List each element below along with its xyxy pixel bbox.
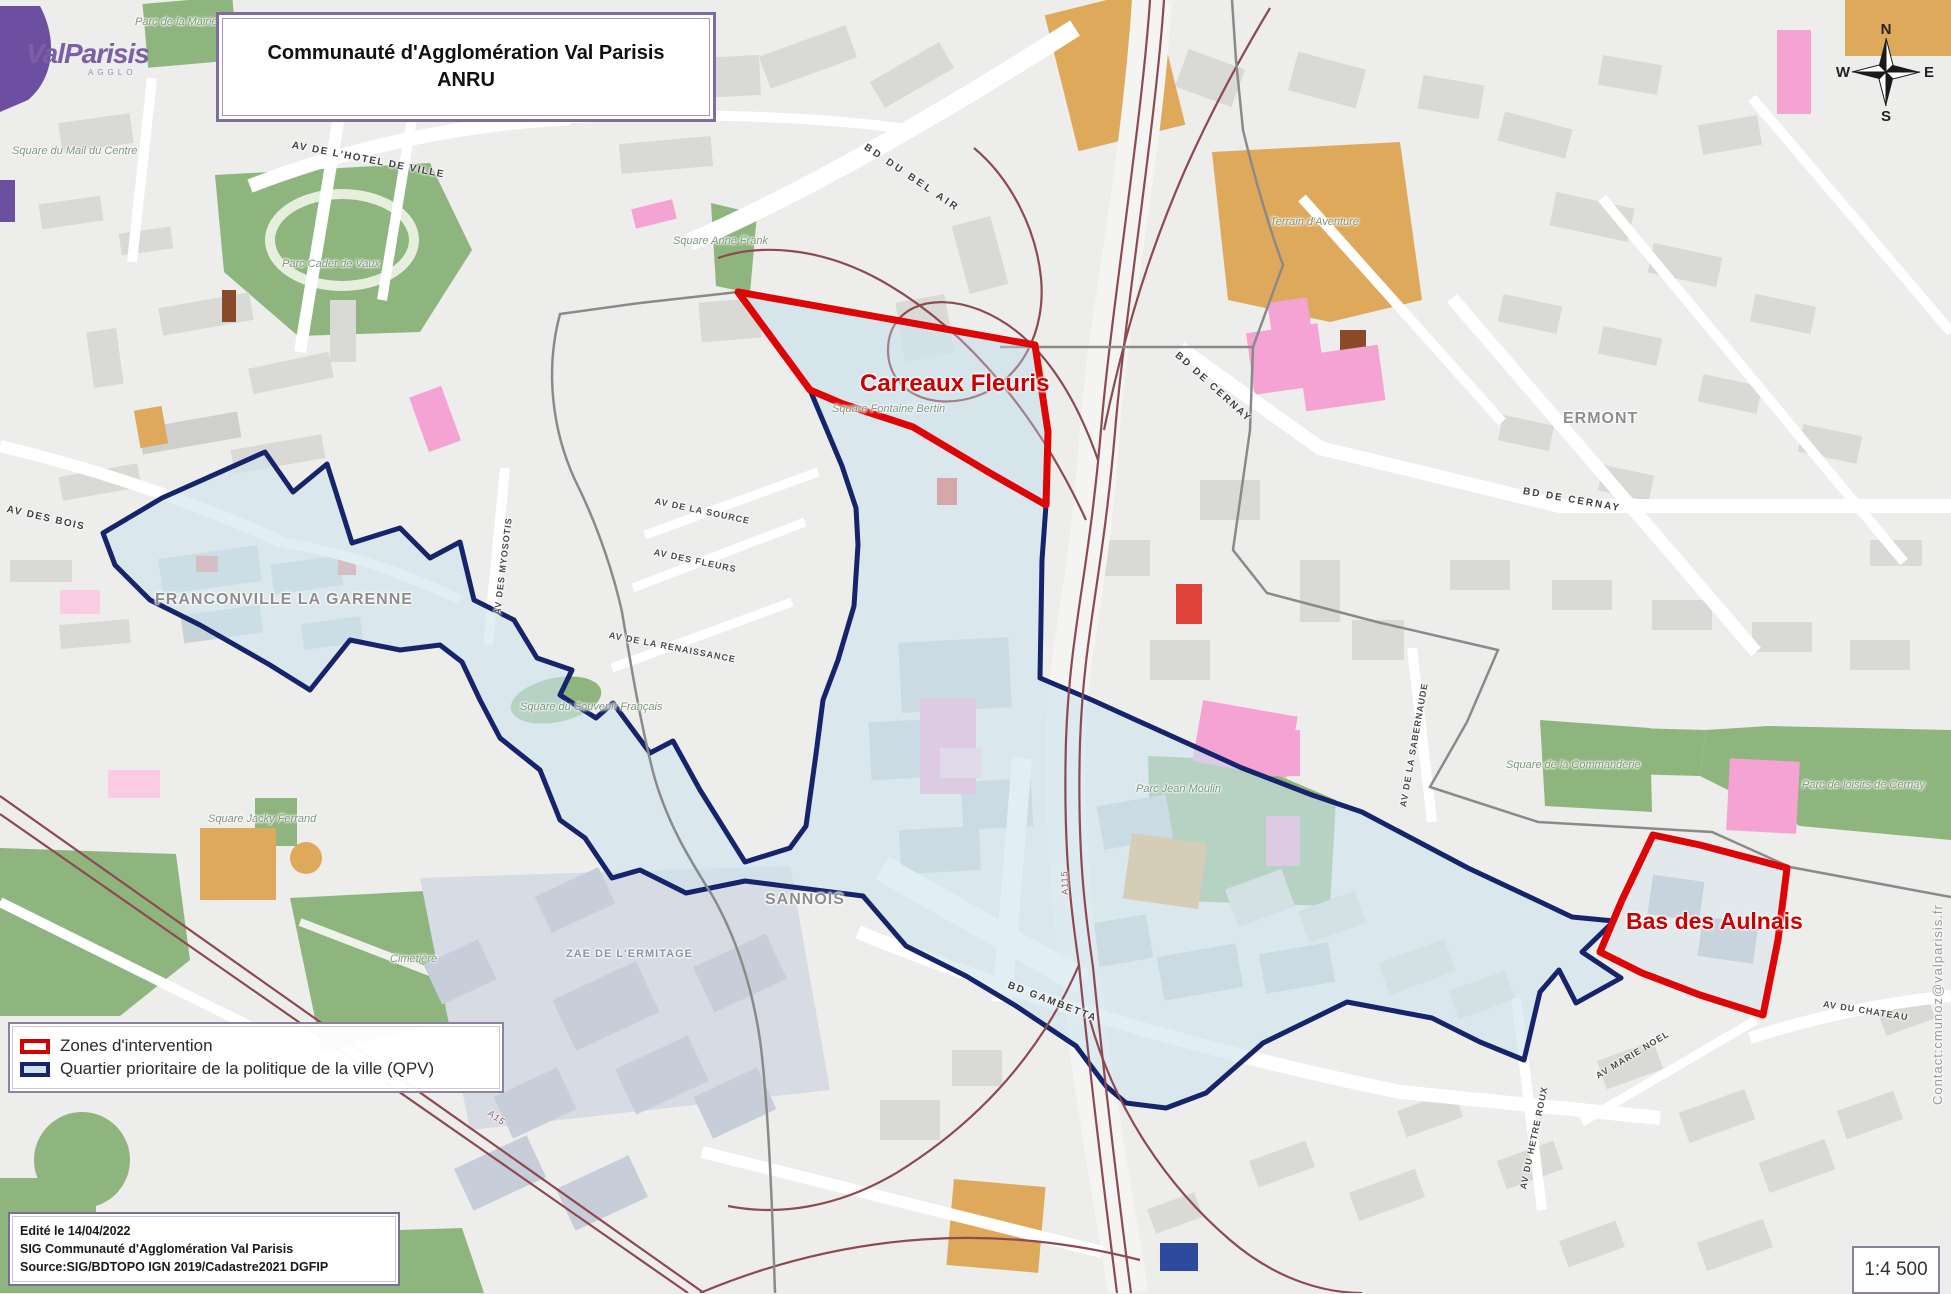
map-shape xyxy=(1498,294,1563,334)
legend-label-qpv: Quartier prioritaire de la politique de … xyxy=(60,1059,434,1079)
map-title-inner: Communauté d'Agglomération Val Parisis A… xyxy=(222,18,710,116)
label-parc-cadet-de-vaux: Parc Cadet de Vaux xyxy=(282,258,380,270)
map-shape xyxy=(200,828,276,900)
label-square-fontaine-bertin: Square Fontaine Bertin xyxy=(832,403,945,415)
page-title: Communauté d'Agglomération Val Parisis xyxy=(267,42,664,65)
contact-email: Contact:cmunoz@valparisis.fr xyxy=(1930,904,1945,1105)
map-shape xyxy=(1262,730,1300,776)
map-shape xyxy=(60,590,100,614)
map-shape xyxy=(1698,115,1762,155)
map-shape xyxy=(134,406,168,448)
map-title-box: Communauté d'Agglomération Val Parisis A… xyxy=(216,12,716,122)
map-shape xyxy=(1752,98,1951,332)
map-shape xyxy=(619,136,713,174)
map-shape xyxy=(700,1238,1140,1293)
legend-swatch-red xyxy=(20,1039,50,1054)
label-zone-carreaux-fleuris: Carreaux Fleuris xyxy=(860,370,1049,398)
map-shape xyxy=(1147,1192,1203,1234)
map-geometry xyxy=(0,0,1951,1293)
map-shape xyxy=(1298,345,1385,412)
label-zae-ermitage: ZAE DE L'ERMITAGE xyxy=(566,948,693,960)
map-shape xyxy=(1598,326,1663,366)
label-city-ermont: ERMONT xyxy=(1563,410,1638,428)
info-sig: SIG Communauté d'Agglomération Val Paris… xyxy=(20,1240,388,1258)
compass-s: S xyxy=(1881,108,1891,122)
map-shape xyxy=(1418,75,1485,119)
map-shape xyxy=(1777,30,1811,114)
compass-rose: N S W E xyxy=(1836,22,1936,122)
label-square-anne-frank: Square Anne Frank xyxy=(673,235,768,247)
legend-label-zones: Zones d'intervention xyxy=(60,1036,213,1056)
legend-box: Zones d'intervention Quartier prioritair… xyxy=(8,1022,504,1093)
legend-swatch-navy xyxy=(20,1062,50,1077)
map-shape xyxy=(290,842,322,874)
map-shape xyxy=(759,25,857,88)
map-shape xyxy=(1249,1141,1315,1188)
label-parc-loisirs-cernay: Parc de loisirs de Cernay xyxy=(1802,779,1925,791)
map-shape xyxy=(1176,584,1202,624)
map-shape xyxy=(1498,415,1554,451)
map-shape xyxy=(59,619,131,649)
map-shape xyxy=(1497,111,1572,158)
map-shape xyxy=(1837,1091,1904,1140)
label-square-du-souvenir: Square du Souvenir Français xyxy=(520,701,662,713)
label-parc-de-la-mairie: Parc de la Mairie xyxy=(135,16,218,28)
info-edited-date: Edité le 14/04/2022 xyxy=(20,1222,388,1240)
map-shape xyxy=(1552,580,1612,610)
label-parc-jean-moulin: Parc Jean Moulin xyxy=(1136,783,1221,795)
map-shape xyxy=(330,300,356,362)
map-shape xyxy=(1679,1089,1756,1143)
map-shape xyxy=(631,199,677,229)
scale-value: 1:4 500 xyxy=(1864,1259,1927,1281)
map-shape xyxy=(1598,55,1662,95)
map-shape xyxy=(1850,640,1910,670)
map-shape xyxy=(1288,52,1366,109)
map-shape xyxy=(119,226,174,255)
compass-w: W xyxy=(1836,64,1851,81)
map-shape xyxy=(1150,640,1210,680)
compass-n: N xyxy=(1881,22,1892,38)
map-shape xyxy=(10,560,72,582)
label-square-du-mail: Square du Mail du Centre xyxy=(12,145,137,157)
map-shape xyxy=(1200,480,1260,520)
page-subtitle: ANRU xyxy=(437,69,495,92)
map-shape xyxy=(86,328,124,388)
map-shape xyxy=(108,770,160,798)
map-shape xyxy=(1726,758,1800,834)
map-shape xyxy=(1450,560,1510,590)
map-shape xyxy=(0,180,15,222)
label-zone-bas-des-aulnais: Bas des Aulnais xyxy=(1626,908,1803,935)
scale-box: 1:4 500 xyxy=(1852,1246,1940,1294)
map-shape xyxy=(870,42,954,108)
label-cimetiere: Cimetière xyxy=(390,953,437,965)
map-shape xyxy=(952,216,1009,294)
map-shape xyxy=(556,1155,648,1230)
map-shape xyxy=(1349,1169,1425,1221)
map-shape xyxy=(1759,1139,1836,1193)
map-canvas[interactable]: Parc de la Mairie Square du Mail du Cent… xyxy=(0,0,1951,1293)
map-shape xyxy=(1175,49,1245,107)
info-source: Source:SIG/BDTOPO IGN 2019/Cadastre2021 … xyxy=(20,1258,388,1276)
legend-item-qpv: Quartier prioritaire de la politique de … xyxy=(20,1059,492,1079)
map-shape xyxy=(1267,297,1312,342)
park-bottom-left xyxy=(0,848,190,1016)
map-shape xyxy=(39,196,104,229)
map-shape xyxy=(1559,1221,1625,1268)
info-box: Edité le 14/04/2022 SIG Communauté d'Agg… xyxy=(8,1212,400,1286)
map-shape xyxy=(1697,1219,1773,1271)
logo-text: ValParisis xyxy=(26,38,176,70)
map-shape xyxy=(1750,294,1816,334)
label-terrain-aventure: Terrain d'Aventure xyxy=(1270,216,1359,228)
map-shape xyxy=(1652,600,1712,630)
map-shape xyxy=(409,386,461,452)
map-shape xyxy=(248,352,334,394)
map-shape xyxy=(1752,622,1812,652)
compass-e: E xyxy=(1924,64,1934,81)
label-a115: A115 xyxy=(1059,870,1070,895)
map-shape xyxy=(880,1100,940,1140)
legend-item-zones: Zones d'intervention xyxy=(20,1036,492,1056)
label-city-sannois: SANNOIS xyxy=(765,891,845,909)
map-shape xyxy=(1300,560,1340,622)
valparisis-logo: ValParisis AGGLO xyxy=(26,38,176,77)
label-square-jacky-ferrand: Square Jacky Ferrand xyxy=(208,813,316,825)
map-shape xyxy=(1160,1243,1198,1271)
label-square-commanderie: Square de la Commanderie xyxy=(1506,759,1641,771)
label-city-franconville: FRANCONVILLE LA GARENNE xyxy=(155,591,413,609)
map-shape xyxy=(158,292,253,336)
logo-subtext: AGGLO xyxy=(88,68,176,77)
map-shape xyxy=(952,1050,1002,1086)
map-shape xyxy=(222,290,236,322)
